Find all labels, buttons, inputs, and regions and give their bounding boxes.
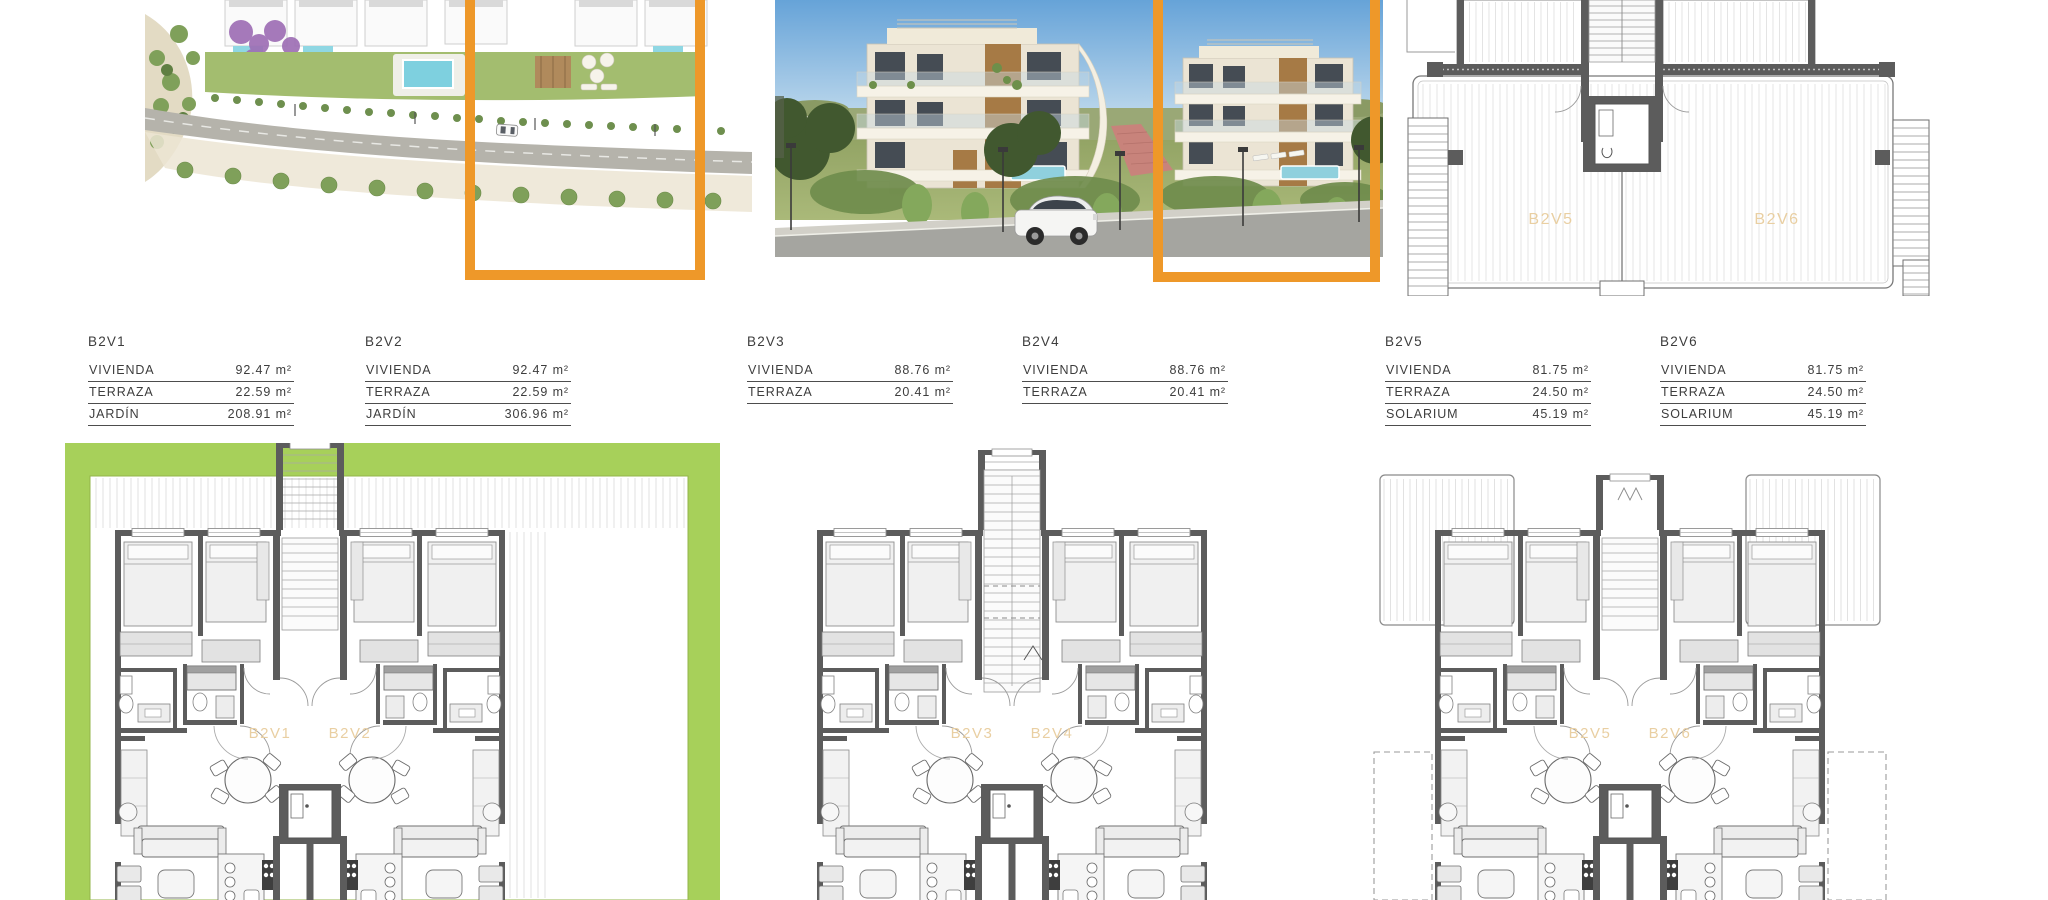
spec-label: JARDÍN [366,407,417,421]
spec-label: VIVIENDA [748,363,814,377]
spec-label: TERRAZA [748,385,813,399]
spec-row: SOLARIUM45.19 m² [1660,404,1866,426]
roof-plan-drawing: B2V5B2V6 [1405,0,1945,296]
spec-value: 22.59 m² [512,385,569,399]
spec-row: SOLARIUM45.19 m² [1385,404,1591,426]
spec-value: 92.47 m² [512,363,569,377]
highlight-box-street [1153,0,1380,282]
spec-row: TERRAZA24.50 m² [1385,382,1591,404]
spec-row: TERRAZA20.41 m² [1022,382,1228,404]
spec-value: 88.76 m² [1169,363,1226,377]
spec-label: SOLARIUM [1661,407,1734,421]
unit-id: B2V2 [365,334,571,354]
plan-unit-label: B2V5 [1569,725,1612,742]
apartment-building-left [857,20,1107,188]
spec-row: TERRAZA20.41 m² [747,382,953,404]
plan-unit-label: B2V5 [1528,211,1573,228]
spec-row: VIVIENDA88.76 m² [1022,360,1228,382]
unit-spec-table-b2v4: B2V4 VIVIENDA88.76 m² TERRAZA20.41 m² [1022,334,1228,404]
spec-row: JARDÍN208.91 m² [88,404,294,426]
highlight-box-aerial [465,0,705,280]
unit-spec-table-b2v5: B2V5 VIVIENDA81.75 m² TERRAZA24.50 m² SO… [1385,334,1591,426]
spec-value: 208.91 m² [228,407,292,421]
plan-unit-label: B2V3 [951,725,994,742]
spec-label: JARDÍN [89,407,140,421]
spec-label: VIVIENDA [1386,363,1452,377]
unit-id: B2V6 [1660,334,1866,354]
spec-label: VIVIENDA [366,363,432,377]
floor-plan-b2v1-b2v2: B2V1B2V2 [65,443,720,900]
unit-id: B2V4 [1022,334,1228,354]
unit-id: B2V1 [88,334,294,354]
unit-spec-table-b2v1: B2V1 VIVIENDA92.47 m² TERRAZA22.59 m² JA… [88,334,294,426]
spec-label: VIVIENDA [1023,363,1089,377]
spec-label: TERRAZA [1386,385,1451,399]
spec-label: SOLARIUM [1386,407,1459,421]
plan-unit-right [1038,529,1207,900]
spec-row: VIVIENDA81.75 m² [1660,360,1866,382]
spec-value: 306.96 m² [505,407,569,421]
plan-unit-left [1435,529,1604,900]
spec-value: 45.19 m² [1532,407,1589,421]
spec-value: 22.59 m² [235,385,292,399]
spec-label: VIVIENDA [1661,363,1727,377]
plan-unit-left [817,529,986,900]
spec-row: TERRAZA22.59 m² [88,382,294,404]
plan-unit-label: B2V2 [329,725,372,742]
floor-plan-b2v5-b2v6: B2V5B2V6 [1370,443,1890,900]
unit-spec-table-b2v3: B2V3 VIVIENDA88.76 m² TERRAZA20.41 m² [747,334,953,404]
spec-row: TERRAZA22.59 m² [365,382,571,404]
spec-row: VIVIENDA81.75 m² [1385,360,1591,382]
spec-value: 24.50 m² [1807,385,1864,399]
plan-unit-label: B2V6 [1754,211,1799,228]
spec-value: 45.19 m² [1807,407,1864,421]
spec-label: TERRAZA [1661,385,1726,399]
spec-value: 20.41 m² [1169,385,1226,399]
plan-unit-label: B2V1 [249,725,292,742]
spec-row: JARDÍN306.96 m² [365,404,571,426]
spec-value: 20.41 m² [894,385,951,399]
spec-row: TERRAZA24.50 m² [1660,382,1866,404]
spec-value: 88.76 m² [894,363,951,377]
plan-unit-right [1656,529,1825,900]
spec-row: VIVIENDA88.76 m² [747,360,953,382]
unit-spec-table-b2v2: B2V2 VIVIENDA92.47 m² TERRAZA22.59 m² JA… [365,334,571,426]
spec-row: VIVIENDA92.47 m² [88,360,294,382]
spec-label: VIVIENDA [89,363,155,377]
unit-id: B2V5 [1385,334,1591,354]
plan-unit-label: B2V4 [1031,725,1074,742]
spec-label: TERRAZA [1023,385,1088,399]
spec-value: 81.75 m² [1532,363,1589,377]
spec-label: TERRAZA [366,385,431,399]
spec-value: 24.50 m² [1532,385,1589,399]
floor-plan-b2v3-b2v4: B2V3B2V4 [752,443,1272,900]
spec-value: 81.75 m² [1807,363,1864,377]
brochure-page: B2V5B2V6 B2V1 VIVIENDA92.47 m² TERRAZA22… [0,0,2048,900]
unit-spec-table-b2v6: B2V6 VIVIENDA81.75 m² TERRAZA24.50 m² SO… [1660,334,1866,426]
plan-unit-label: B2V6 [1649,725,1692,742]
spec-value: 92.47 m² [235,363,292,377]
spec-row: VIVIENDA92.47 m² [365,360,571,382]
spec-label: TERRAZA [89,385,154,399]
unit-id: B2V3 [747,334,953,354]
